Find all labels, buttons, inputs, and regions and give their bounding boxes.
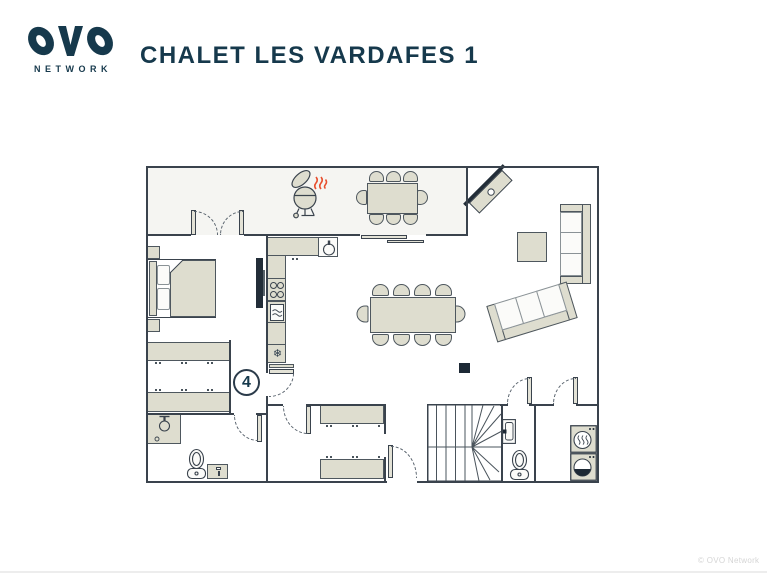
staircase bbox=[427, 404, 503, 482]
wardrobe bbox=[147, 342, 230, 361]
dining-table bbox=[370, 297, 456, 333]
wall-segment bbox=[501, 404, 503, 483]
bedroom-count-badge: 4 bbox=[233, 369, 260, 396]
blanket-fold-icon bbox=[170, 260, 183, 273]
burner-icon bbox=[277, 282, 284, 289]
pillow bbox=[157, 288, 170, 310]
wall-segment bbox=[384, 457, 386, 483]
floor-marker bbox=[459, 363, 470, 373]
chair bbox=[403, 171, 418, 182]
bottom-divider bbox=[0, 571, 767, 573]
shower bbox=[146, 413, 181, 444]
wall-segment bbox=[229, 340, 231, 415]
wall-segment bbox=[146, 166, 599, 168]
wall-segment bbox=[384, 404, 386, 434]
oven-icon bbox=[268, 302, 287, 324]
freezer: ❄ bbox=[267, 344, 286, 363]
double-bed bbox=[147, 259, 216, 318]
bbq-grill-icon bbox=[288, 168, 330, 220]
cabinet-handles bbox=[155, 389, 225, 391]
cabinet-handles bbox=[155, 362, 225, 364]
tap-icon bbox=[216, 467, 221, 470]
burner-icon bbox=[270, 282, 277, 289]
chair bbox=[435, 334, 452, 346]
cabinet-handles bbox=[326, 425, 380, 427]
burner-icon bbox=[270, 291, 277, 298]
boot-room-shelf bbox=[320, 405, 384, 424]
chair bbox=[369, 171, 384, 182]
counter-end-shelf bbox=[269, 364, 294, 368]
cabinet-handles bbox=[292, 258, 312, 260]
chair bbox=[435, 284, 452, 296]
sliding-door-panel bbox=[387, 240, 424, 243]
wall-segment bbox=[466, 166, 468, 236]
door-swing-arc bbox=[234, 415, 258, 441]
wall-segment bbox=[576, 404, 599, 406]
snowflake-icon: ❄ bbox=[268, 347, 287, 360]
door-swing-arc bbox=[507, 378, 530, 404]
chair bbox=[414, 284, 431, 296]
wall-segment bbox=[146, 234, 191, 236]
wall-segment bbox=[534, 404, 536, 483]
wall-segment bbox=[267, 404, 283, 406]
chair bbox=[356, 190, 367, 205]
washing-machine-icon bbox=[570, 453, 597, 481]
hob bbox=[267, 278, 286, 301]
chair bbox=[393, 284, 410, 296]
shower-head-icon bbox=[147, 414, 182, 445]
oven bbox=[267, 301, 286, 323]
nightstand bbox=[147, 246, 160, 259]
wardrobe bbox=[147, 392, 230, 412]
tv-mount bbox=[263, 270, 265, 296]
ovo-network-logo: NETWORK bbox=[28, 22, 118, 76]
chair bbox=[414, 334, 431, 346]
hand-basin-icon bbox=[502, 419, 516, 444]
wall-segment bbox=[529, 404, 554, 406]
chair bbox=[372, 334, 389, 346]
toilet-icon bbox=[186, 449, 207, 480]
page-title: CHALET LES VARDAFES 1 bbox=[140, 42, 479, 70]
heat-icon bbox=[315, 177, 327, 189]
chair bbox=[393, 334, 410, 346]
sofa-angled bbox=[486, 282, 577, 343]
door-swing-arc bbox=[553, 378, 576, 404]
fireplace-icon bbox=[461, 162, 519, 220]
wall-segment bbox=[417, 481, 599, 483]
chair bbox=[372, 284, 389, 296]
toilet-icon bbox=[509, 450, 530, 481]
wall-segment bbox=[146, 166, 148, 483]
boot-room-shelf bbox=[320, 459, 384, 479]
sink-unit bbox=[318, 237, 338, 257]
burner-icon bbox=[277, 291, 284, 298]
ovo-logo-mark bbox=[23, 22, 118, 60]
logo-network-text: NETWORK bbox=[34, 64, 112, 74]
pillow bbox=[157, 265, 170, 285]
sliding-door-panel bbox=[361, 235, 407, 239]
nightstand bbox=[147, 319, 160, 332]
wall-segment bbox=[306, 404, 386, 406]
outdoor-dining-table bbox=[367, 183, 418, 214]
wall-segment bbox=[146, 413, 234, 415]
wall-segment bbox=[244, 234, 360, 236]
vanity-sink bbox=[207, 464, 228, 479]
copyright-text: © OVO Network bbox=[698, 556, 759, 565]
chair bbox=[357, 306, 369, 323]
chair bbox=[386, 171, 401, 182]
floor-plan-page: NETWORK CHALET LES VARDAFES 1 bbox=[0, 0, 767, 575]
wall-segment bbox=[266, 396, 268, 483]
door-swing-arc bbox=[391, 446, 417, 478]
door-swing-arc bbox=[269, 373, 294, 397]
door-swing-arc bbox=[283, 406, 308, 434]
wall-segment bbox=[426, 234, 468, 236]
coffee-table bbox=[517, 232, 547, 262]
wall-segment bbox=[597, 166, 599, 483]
cabinet-handles bbox=[326, 456, 380, 458]
wall-segment bbox=[266, 234, 268, 373]
tumble-dryer-icon bbox=[570, 425, 597, 453]
sink-icon bbox=[319, 238, 339, 258]
tv bbox=[256, 258, 263, 308]
sofa-straight bbox=[560, 204, 591, 284]
